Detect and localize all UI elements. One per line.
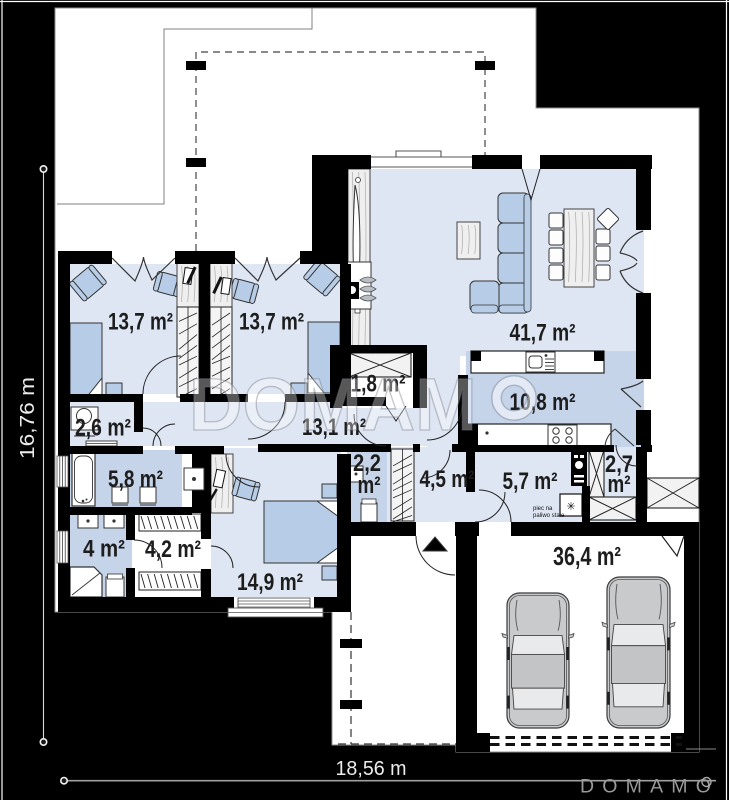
svg-text:✳: ✳ — [566, 501, 575, 513]
svg-text:m²: m² — [608, 471, 631, 498]
svg-text:4,5 m²: 4,5 m² — [420, 466, 475, 493]
svg-text:18,56 m: 18,56 m — [336, 758, 407, 780]
svg-text:DOMAMO: DOMAMO — [580, 776, 719, 798]
svg-text:16,76 m: 16,76 m — [17, 377, 39, 459]
svg-text:piec na: piec na — [533, 506, 553, 512]
svg-text:41,7 m²: 41,7 m² — [510, 320, 576, 347]
svg-text:13,7 m²: 13,7 m² — [239, 309, 304, 336]
svg-text:36,4 m²: 36,4 m² — [553, 541, 621, 571]
svg-text:4 m²: 4 m² — [83, 536, 125, 563]
svg-text:13,7 m²: 13,7 m² — [108, 309, 173, 336]
svg-text:14,9 m²: 14,9 m² — [237, 569, 303, 596]
svg-text:4,2 m²: 4,2 m² — [145, 536, 201, 563]
svg-text:m²: m² — [358, 472, 381, 499]
svg-text:5,8 m²: 5,8 m² — [108, 466, 163, 493]
svg-text:DOMAM: DOMAM — [189, 363, 477, 446]
svg-text:5,7 m²: 5,7 m² — [503, 468, 558, 495]
svg-text:paliwo stałe: paliwo stałe — [533, 513, 565, 519]
svg-text:2,6 m²: 2,6 m² — [75, 415, 131, 442]
